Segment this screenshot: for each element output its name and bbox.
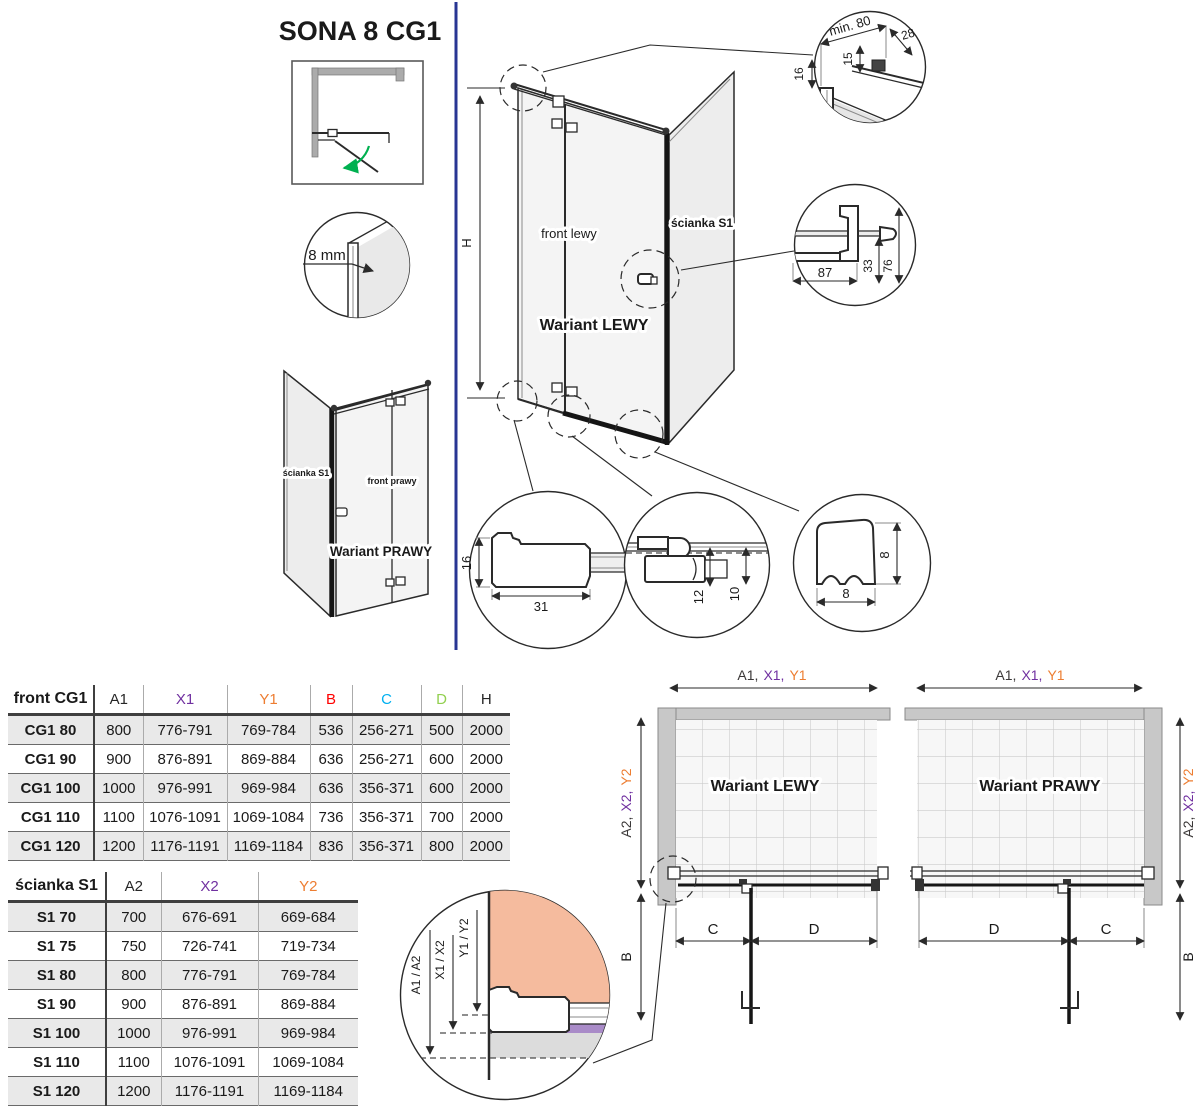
cell-x1: 1076-1091 xyxy=(143,803,227,832)
adjust-y-label: Y1 / Y2 xyxy=(457,918,471,957)
row-name: S1 75 xyxy=(8,932,106,961)
bar-bracket xyxy=(553,96,564,107)
table-row: CG1 100 1000 976-991 969-984 636 356-371… xyxy=(8,774,510,803)
cell-h: 2000 xyxy=(462,832,510,861)
cell-a2: 1100 xyxy=(106,1048,161,1077)
cell-h: 2000 xyxy=(462,745,510,774)
row-name: CG1 110 xyxy=(8,803,94,832)
cell-b: 536 xyxy=(310,715,352,745)
cell-y2: 1169-1184 xyxy=(258,1077,358,1106)
wall-top xyxy=(312,68,404,75)
shower-enclosure-spec-sheet: SONA 8 CG1 8 mm xyxy=(0,0,1200,1119)
table-row: CG1 90 900 876-891 869-884 636 256-271 6… xyxy=(8,745,510,774)
wall-top xyxy=(658,708,890,720)
table-row: S1 90 900 876-891 869-884 xyxy=(8,990,358,1019)
cell-c: 356-371 xyxy=(352,803,421,832)
detail-seal: 8 8 xyxy=(794,495,931,632)
table-row: S1 75 750 726-741 719-734 xyxy=(8,932,358,961)
col-header-x2: X2 xyxy=(161,872,258,902)
hinge-top-icon xyxy=(552,119,562,128)
row-name: CG1 90 xyxy=(8,745,94,774)
wall-panel xyxy=(669,72,734,443)
front-table-title: front CG1 xyxy=(8,685,94,715)
dim-a1x1y1: A1,X1,Y1 xyxy=(995,667,1064,683)
cell-h: 2000 xyxy=(462,715,510,745)
cell-x1: 876-891 xyxy=(143,745,227,774)
table-row: S1 120 1200 1176-1191 1169-1184 xyxy=(8,1077,358,1106)
dim-c: C xyxy=(708,921,719,938)
col-header-d: D xyxy=(421,685,462,715)
col-header-h: H xyxy=(462,685,510,715)
row-name: S1 100 xyxy=(8,1019,106,1048)
table-row: CG1 120 1200 1176-1191 1169-1184 836 356… xyxy=(8,832,510,861)
col-header-y1: Y1 xyxy=(227,685,310,715)
front-panel xyxy=(336,385,428,616)
cell-d: 800 xyxy=(421,832,462,861)
wall-label: ścianka S1 xyxy=(671,216,733,230)
variant-lewy-3d: front lewy ścianka S1 Wariant LEWY H xyxy=(459,45,813,511)
cell-a1: 1200 xyxy=(94,832,143,861)
detail-bottom-hinge: 12 10 xyxy=(625,493,770,638)
page-title: SONA 8 CG1 xyxy=(279,16,442,46)
cell-a2: 750 xyxy=(106,932,161,961)
cell-h: 2000 xyxy=(462,803,510,832)
row-name: CG1 100 xyxy=(8,774,94,803)
row-name: S1 120 xyxy=(8,1077,106,1106)
cell-y1: 769-784 xyxy=(227,715,310,745)
table-row: S1 100 1000 976-991 969-984 xyxy=(8,1019,358,1048)
hinge-top-icon xyxy=(386,399,394,406)
detail-wall-profile: 16 31 xyxy=(459,492,628,649)
col-header-a1: A1 xyxy=(94,685,143,715)
cell-x2: 776-791 xyxy=(161,961,258,990)
cell-x2: 1176-1191 xyxy=(161,1077,258,1106)
col-header-c: C xyxy=(352,685,421,715)
dim-b: B xyxy=(618,952,634,961)
dim-b: B xyxy=(1180,952,1196,961)
col-header-x1: X1 xyxy=(143,685,227,715)
cell-c: 256-271 xyxy=(352,715,421,745)
hinge-bottom-icon xyxy=(386,579,394,586)
cell-c: 356-371 xyxy=(352,774,421,803)
cell-a1: 900 xyxy=(94,745,143,774)
scianka-s1-table: ścianka S1 A2 X2 Y2 S1 70 700 676-691 66… xyxy=(8,872,358,1106)
cell-d: 500 xyxy=(421,715,462,745)
cell-b: 636 xyxy=(310,745,352,774)
col-header-b: B xyxy=(310,685,352,715)
detail-top-bar: min. 80 28 15 16 xyxy=(792,12,928,153)
cell-y1: 869-884 xyxy=(227,745,310,774)
cell-y2: 869-884 xyxy=(258,990,358,1019)
plan-view-prawy: Wariant PRAWY A1,X1,Y1 A2,X2,Y2 B D C xyxy=(905,667,1196,1024)
cell-d: 600 xyxy=(421,745,462,774)
header-row: ścianka S1 A2 X2 Y2 xyxy=(8,872,358,902)
adjust-a-label: A1 / A2 xyxy=(409,955,423,994)
variant-caption: Wariant LEWY xyxy=(711,778,820,795)
cell-x1: 976-991 xyxy=(143,774,227,803)
front-label: front lewy xyxy=(541,226,597,241)
cell-y1: 1069-1084 xyxy=(227,803,310,832)
dim-c: C xyxy=(1101,921,1112,938)
dim-8-width: 8 xyxy=(842,586,849,601)
wall-panel xyxy=(284,371,330,616)
col-header-y2: Y2 xyxy=(258,872,358,902)
cell-y1: 969-984 xyxy=(227,774,310,803)
dim-d: D xyxy=(989,921,1000,938)
dim-a1x1y1: A1,X1,Y1 xyxy=(737,667,806,683)
header-row: front CG1 A1 X1 Y1 B C D H xyxy=(8,685,510,715)
row-name: CG1 80 xyxy=(8,715,94,745)
gray-zone xyxy=(489,1033,611,1058)
dim-33: 33 xyxy=(861,259,875,273)
cell-y2: 769-784 xyxy=(258,961,358,990)
variant-caption: Wariant LEWY xyxy=(540,317,649,334)
cell-y1: 1169-1184 xyxy=(227,832,310,861)
row-name: S1 70 xyxy=(8,902,106,932)
cell-b: 736 xyxy=(310,803,352,832)
detail-adjustment-range: A1 / A2 X1 / X2 Y1 / Y2 xyxy=(401,889,667,1100)
cell-y2: 669-684 xyxy=(258,902,358,932)
table-row: S1 70 700 676-691 669-684 xyxy=(8,902,358,932)
dim-15: 15 xyxy=(841,52,855,66)
dim-16: 16 xyxy=(792,67,806,81)
variant-prawy-3d: ścianka S1 front prawy Wariant PRAWY xyxy=(283,371,432,617)
variant-caption: Wariant PRAWY xyxy=(979,778,1101,795)
height-dimension: H xyxy=(459,88,505,398)
cell-x2: 1076-1091 xyxy=(161,1048,258,1077)
wall-label: ścianka S1 xyxy=(283,468,330,478)
col-header-a2: A2 xyxy=(106,872,161,902)
cell-x2: 876-891 xyxy=(161,990,258,1019)
handle-icon xyxy=(336,508,347,516)
cell-a1: 800 xyxy=(94,715,143,745)
table-row: CG1 110 1100 1076-1091 1069-1084 736 356… xyxy=(8,803,510,832)
cell-a1: 1100 xyxy=(94,803,143,832)
variant-caption: Wariant PRAWY xyxy=(330,544,432,559)
dim-87: 87 xyxy=(818,265,832,280)
adjust-x-label: X1 / X2 xyxy=(433,940,447,980)
cell-x1: 1176-1191 xyxy=(143,832,227,861)
cell-c: 356-371 xyxy=(352,832,421,861)
table-row: S1 110 1100 1076-1091 1069-1084 xyxy=(8,1048,358,1077)
wall-top xyxy=(905,708,1162,720)
glass-thickness-label: 8 mm xyxy=(308,247,346,264)
cell-a2: 1000 xyxy=(106,1019,161,1048)
table-row: CG1 80 800 776-791 769-784 536 256-271 5… xyxy=(8,715,510,745)
cell-d: 600 xyxy=(421,774,462,803)
cell-x2: 676-691 xyxy=(161,902,258,932)
dim-d: D xyxy=(809,921,820,938)
cell-a2: 800 xyxy=(106,961,161,990)
front-label: front prawy xyxy=(367,476,416,486)
dim-31: 31 xyxy=(534,599,548,614)
dim-a2x2y2: A2,X2,Y2 xyxy=(618,768,634,837)
cell-a2: 900 xyxy=(106,990,161,1019)
row-name: S1 110 xyxy=(8,1048,106,1077)
cell-x1: 776-791 xyxy=(143,715,227,745)
dim-16: 16 xyxy=(459,556,474,570)
row-name: CG1 120 xyxy=(8,832,94,861)
dim-8-height: 8 xyxy=(877,551,892,558)
row-name: S1 90 xyxy=(8,990,106,1019)
cell-x2: 976-991 xyxy=(161,1019,258,1048)
hinge-bottom-icon xyxy=(552,383,562,392)
wall-left xyxy=(312,68,318,157)
cell-c: 256-271 xyxy=(352,745,421,774)
dim-a2x2y2: A2,X2,Y2 xyxy=(1180,768,1196,837)
door-swing-schematic xyxy=(292,61,423,184)
row-name: S1 80 xyxy=(8,961,106,990)
cell-y2: 1069-1084 xyxy=(258,1048,358,1077)
cell-a2: 1200 xyxy=(106,1077,161,1106)
cell-h: 2000 xyxy=(462,774,510,803)
cell-d: 700 xyxy=(421,803,462,832)
wall-table-title: ścianka S1 xyxy=(8,872,106,902)
cell-b: 836 xyxy=(310,832,352,861)
cell-b: 636 xyxy=(310,774,352,803)
cell-y2: 969-984 xyxy=(258,1019,358,1048)
front-panel xyxy=(518,88,665,443)
glass-thickness-detail: 8 mm xyxy=(303,211,416,330)
dim-12: 12 xyxy=(691,590,706,604)
front-cg1-table: front CG1 A1 X1 Y1 B C D H CG1 80 800 77… xyxy=(8,685,510,861)
dim-76: 76 xyxy=(881,259,895,273)
cell-a1: 1000 xyxy=(94,774,143,803)
cell-y2: 719-734 xyxy=(258,932,358,961)
table-row: S1 80 800 776-791 769-784 xyxy=(8,961,358,990)
detail-handle: 87 33 76 xyxy=(793,185,916,306)
dim-10: 10 xyxy=(727,587,742,601)
cell-a2: 700 xyxy=(106,902,161,932)
height-label: H xyxy=(459,238,474,247)
cell-x2: 726-741 xyxy=(161,932,258,961)
